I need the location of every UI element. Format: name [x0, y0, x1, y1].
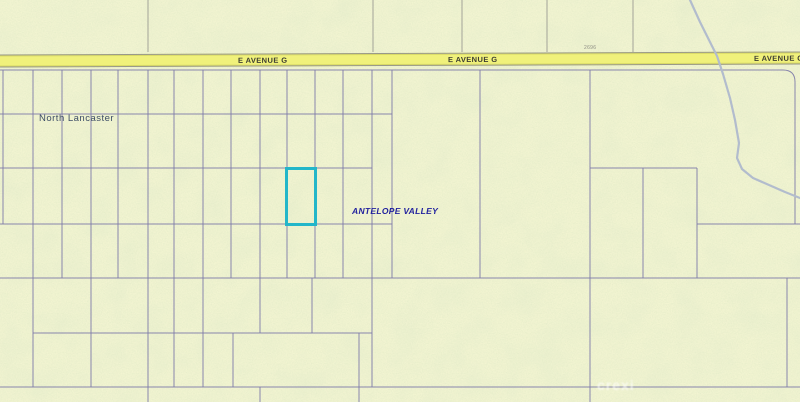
- highlighted-parcel[interactable]: [285, 167, 317, 226]
- parcel-lines-layer: [0, 0, 800, 402]
- watermark: crexi: [597, 377, 635, 393]
- parcel-map-canvas: E AVENUE G E AVENUE G E AVENUE G 2696 No…: [0, 0, 800, 402]
- region-label-north-lancaster: North Lancaster: [39, 113, 114, 124]
- region-label-antelope-valley: ANTELOPE VALLEY: [352, 206, 438, 216]
